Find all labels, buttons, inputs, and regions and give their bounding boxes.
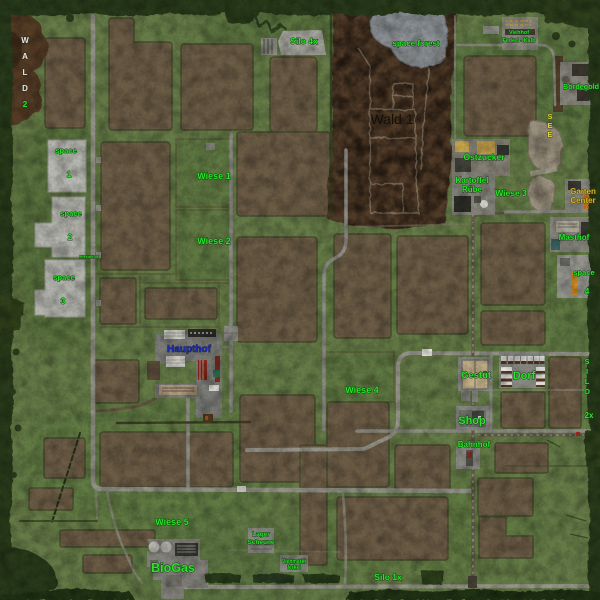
svg-text:Wiese 1: Wiese 1 [197,171,230,181]
svg-text:D: D [22,84,28,93]
svg-text:A: A [22,52,28,61]
svg-text:L: L [585,377,590,386]
svg-text:space: space [60,209,81,218]
svg-text:Silo 4x: Silo 4x [290,36,318,46]
svg-text:W: W [21,36,29,45]
svg-text:Pferdehof: Pferdehof [80,254,99,259]
svg-text:Dorf: Dorf [513,370,536,382]
svg-text:O: O [584,387,590,396]
svg-text:2: 2 [23,99,28,109]
svg-text:2x: 2x [585,411,594,420]
svg-text:Scheune: Scheune [247,539,274,546]
svg-text:Haupthof: Haupthof [167,344,212,355]
svg-text:3: 3 [61,296,66,306]
svg-text:Center: Center [570,196,595,205]
svg-text:Viehhof: Viehhof [509,30,529,36]
svg-text:space: space [55,146,76,155]
svg-text:Masthof: Masthof [559,233,590,242]
svg-text:Ferkel - Kalb: Ferkel - Kalb [502,38,536,44]
svg-text:I: I [586,367,588,376]
svg-text:space: space [53,273,74,282]
svg-text:4: 4 [585,286,590,296]
svg-text:Bahnhof: Bahnhof [458,440,491,449]
svg-text:S: S [584,357,589,366]
svg-text:Garten: Garten [570,187,596,196]
svg-text:ferkel: ferkel [287,565,301,571]
svg-text:Wiese 5: Wiese 5 [155,517,188,527]
svg-text:Kartoffel: Kartoffel [456,176,489,185]
svg-text:S: S [547,112,552,121]
svg-text:space forest: space forest [392,39,439,48]
svg-text:Gestüt: Gestüt [461,370,492,381]
svg-text:E: E [547,121,552,130]
svg-text:Wald 1: Wald 1 [370,111,413,127]
svg-text:Wiese 4: Wiese 4 [345,385,378,395]
svg-text:L: L [23,68,28,77]
svg-text:Bördegold: Bördegold [563,82,599,91]
svg-text:Silo 1x: Silo 1x [374,572,402,582]
svg-text:Ostzucker: Ostzucker [463,152,505,162]
svg-text:Rübe: Rübe [462,185,483,194]
svg-text:Shop: Shop [458,415,486,427]
svg-text:Wiese 2: Wiese 2 [197,236,230,246]
svg-text:space: space [573,268,594,277]
svg-text:BioGas: BioGas [151,561,195,575]
svg-text:Wiese 3: Wiese 3 [495,188,527,198]
svg-text:E: E [547,130,552,139]
svg-text:2: 2 [68,232,73,242]
svg-text:1: 1 [67,169,72,179]
svg-text:Lager: Lager [252,531,270,538]
